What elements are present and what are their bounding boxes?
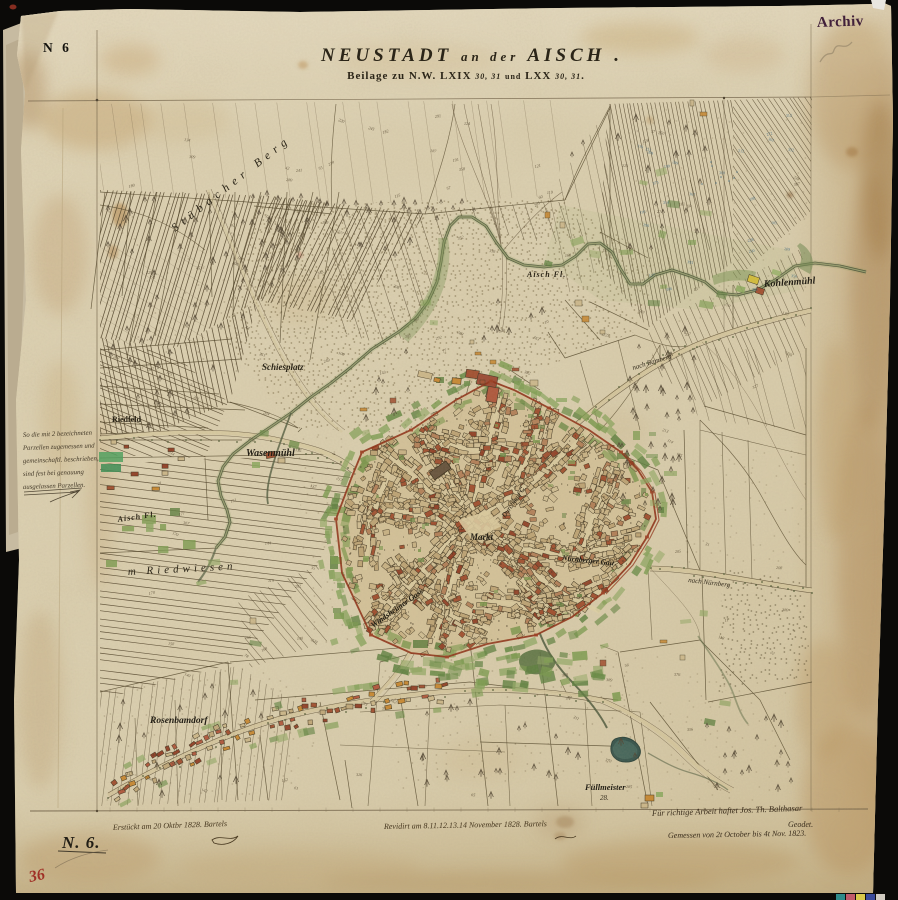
svg-text:Riedfeld: Riedfeld <box>112 415 141 424</box>
svg-text:Archiv: Archiv <box>817 13 864 31</box>
svg-text:Rosenbamdorf: Rosenbamdorf <box>149 716 208 726</box>
svg-text:Füllmeister: Füllmeister <box>584 782 626 792</box>
svg-text:Markt: Markt <box>469 532 494 542</box>
svg-text:NEUSTADT an der AISCH .: NEUSTADT an der AISCH . <box>320 45 623 66</box>
svg-text:Geodet.: Geodet. <box>788 820 813 829</box>
svg-text:Aisch Fl.: Aisch Fl. <box>526 270 566 279</box>
svg-text:N 6: N 6 <box>43 40 72 55</box>
svg-text:Beilage zu N.W. LXIX 30, 31 un: Beilage zu N.W. LXIX 30, 31 und LXX 30, … <box>347 70 585 82</box>
svg-text:28.: 28. <box>600 794 609 802</box>
svg-text:Schiesplatz: Schiesplatz <box>262 362 304 372</box>
svg-text:36: 36 <box>26 866 46 886</box>
svg-text:N. 6.: N. 6. <box>61 833 101 852</box>
svg-text:Wasenmühl: Wasenmühl <box>246 448 295 459</box>
